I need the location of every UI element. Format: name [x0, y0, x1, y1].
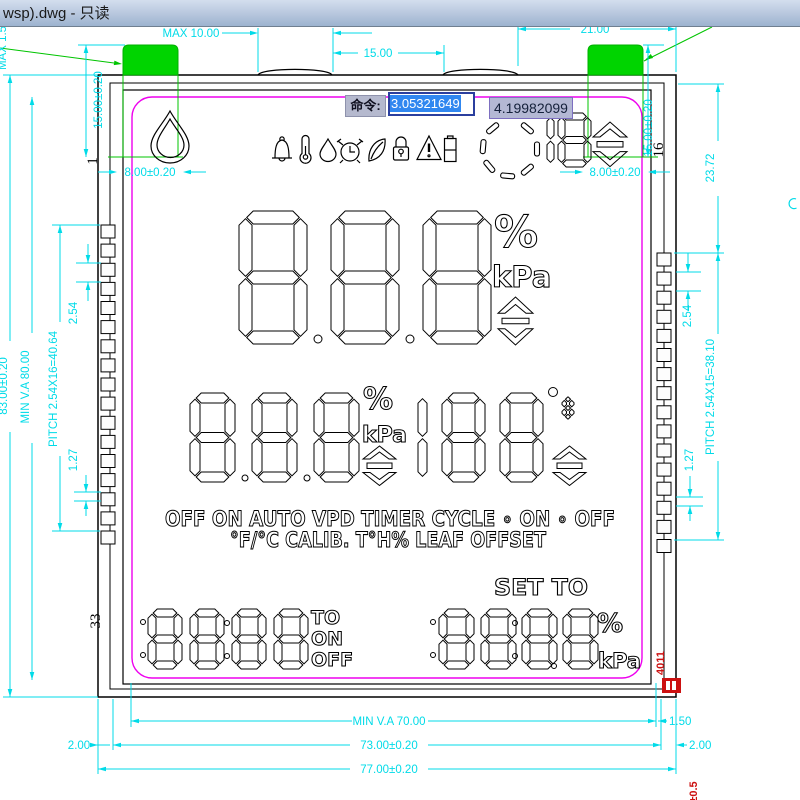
- pin: [657, 463, 671, 476]
- application-window: OFF ON AUTO VPD TIMER CYCLE ∘ ON ∘ OFF °…: [0, 0, 800, 800]
- segment-digit: [481, 609, 516, 669]
- dim-200-right: 2.00: [689, 740, 711, 752]
- title-bar: wsp).dwg - 只读: [0, 0, 800, 27]
- thermometer-icon: [300, 136, 311, 164]
- bell-icon: [272, 137, 292, 161]
- pin: [657, 387, 671, 400]
- segment-digit: [190, 393, 235, 482]
- dim-254-right: 2.54: [682, 304, 694, 327]
- dim-tab-right: 8.00±0.20: [589, 167, 640, 179]
- seal-bump: [443, 69, 518, 75]
- kpa-unit-top: kPa: [492, 260, 551, 294]
- leaf-icon: [369, 139, 385, 161]
- segment-digit: [331, 211, 399, 344]
- segment-digit: [563, 609, 598, 669]
- segment-digit: [562, 397, 574, 419]
- pin: [101, 416, 115, 429]
- pin: [101, 263, 115, 276]
- percent-unit-mid: %: [363, 382, 393, 417]
- dim-tab-left: 8.00±0.20: [124, 167, 175, 179]
- fan-dash: [483, 159, 496, 173]
- dim-200-left: 2.00: [68, 740, 90, 752]
- segment-digit: [423, 211, 491, 344]
- dim-77: 77.00±0.20: [360, 764, 417, 776]
- fan-dash: [520, 122, 534, 135]
- red-code-label: 4011: [655, 651, 667, 675]
- pin: [101, 531, 115, 544]
- pin: [657, 406, 671, 419]
- red-stamp: [662, 678, 681, 693]
- percent-unit-bottom: %: [597, 609, 623, 639]
- segment-digit: [314, 393, 359, 482]
- dim-pitch-left: PITCH 2.54X16=40.64: [48, 330, 60, 447]
- dim-2372: 23.72: [705, 154, 717, 183]
- pin: [657, 253, 671, 266]
- pin: [657, 540, 671, 553]
- lock-icon: [394, 137, 409, 160]
- dim-pitch-right: PITCH 2.54X15=38.10: [705, 339, 717, 455]
- dim-15: 15.00: [364, 48, 393, 60]
- pin: [101, 493, 115, 506]
- water-drop-icon: [151, 111, 189, 163]
- drawing-canvas[interactable]: OFF ON AUTO VPD TIMER CYCLE ∘ ON ∘ OFF °…: [0, 0, 800, 800]
- dim-254-left: 2.54: [68, 301, 80, 324]
- kpa-unit-mid: kPa: [362, 423, 407, 448]
- warning-triangle-icon: [417, 136, 441, 160]
- status-text-row2: °F/°C CALIB. T°H% LEAF OFFSET: [230, 528, 547, 552]
- segment-digit: [442, 393, 485, 482]
- droplet-icon: [320, 139, 336, 162]
- segment-digit: [558, 113, 591, 167]
- percent-unit-top: %: [494, 207, 538, 258]
- red-tolerance-label: ±0.5: [688, 781, 700, 800]
- alarm-clock-icon: [337, 139, 363, 163]
- pin: [101, 435, 115, 448]
- segment-digit: [190, 609, 224, 669]
- dim-127-left: 1.27: [68, 449, 80, 471]
- battery-icon: [445, 136, 457, 162]
- pin: [101, 455, 115, 468]
- pin: [101, 397, 115, 410]
- pin: [101, 378, 115, 391]
- timer-on-label: ON: [311, 628, 343, 650]
- pin: [101, 474, 115, 487]
- window-title: wsp).dwg - 只读: [3, 5, 110, 22]
- fan-dash: [500, 173, 514, 179]
- segment-digit: [252, 393, 297, 482]
- segment-digit: [439, 609, 474, 669]
- pin: [657, 310, 671, 323]
- segment-digit: [239, 211, 307, 344]
- clipped-dimension-mark: [789, 199, 796, 209]
- pin: [657, 501, 671, 514]
- pin: [657, 272, 671, 285]
- pin: [101, 282, 115, 295]
- dim-max-side: MAX 1.5: [0, 26, 9, 70]
- set-to-label: SET TO: [494, 576, 588, 601]
- pin: [657, 520, 671, 533]
- dim-73: 73.00±0.20: [360, 740, 417, 752]
- segment-digit: [500, 393, 543, 482]
- pin: [101, 512, 115, 525]
- pin: [101, 359, 115, 372]
- pin-label-16: 16: [651, 142, 667, 158]
- segment-digit: [274, 609, 308, 669]
- pin: [657, 329, 671, 342]
- dim-83: 83.00±0.20: [0, 357, 10, 414]
- seal-bump: [258, 69, 332, 75]
- kpa-unit-bottom: kPa: [598, 649, 641, 673]
- dim-v15-left: 15.00±0.20: [93, 71, 105, 128]
- dim-150: 1.50: [669, 716, 691, 728]
- segment-digit: [418, 399, 427, 477]
- pin: [101, 244, 115, 257]
- dim-127-right: 1.27: [684, 449, 696, 471]
- decimal-and-colon-dots: [141, 335, 558, 669]
- pin-label-1: 1: [85, 157, 101, 165]
- fan-dash: [535, 142, 540, 156]
- command-input-value[interactable]: 3.05321649: [390, 95, 461, 112]
- fan-rotation-icon: [480, 122, 539, 179]
- pin: [101, 321, 115, 334]
- command-input[interactable]: 3.05321649: [388, 92, 475, 116]
- pin: [101, 225, 115, 238]
- segment-digit: [148, 609, 182, 669]
- pin: [101, 302, 115, 315]
- pin: [657, 368, 671, 381]
- dim-max-10: MAX 10.00: [163, 28, 220, 40]
- dimension-texts: MAX 10.00 15.00 21.00 8.00±0.20 8.00±0.2…: [0, 24, 797, 776]
- command-tooltip: 4.19982099: [489, 97, 573, 119]
- dim-min-va-70: MIN V.A 70.00: [352, 716, 425, 728]
- command-label: 命令:: [345, 95, 386, 117]
- pin: [657, 291, 671, 304]
- segment-digit: [232, 609, 266, 669]
- segment-digit: [547, 118, 554, 163]
- pin: [657, 482, 671, 495]
- fan-dash: [480, 139, 486, 153]
- dim-min-va-80: MIN V.A 80.00: [20, 350, 32, 423]
- pin-label-33: 33: [88, 614, 104, 629]
- fan-dash: [486, 122, 500, 135]
- segment-digit: [522, 609, 557, 669]
- pin: [101, 340, 115, 353]
- pin: [657, 349, 671, 362]
- status-icon-row: [272, 136, 456, 164]
- timer-to-label: TO: [311, 607, 340, 629]
- pin: [657, 444, 671, 457]
- timer-off-label: OFF: [311, 649, 353, 671]
- pin: [657, 425, 671, 438]
- fan-dash: [520, 163, 534, 176]
